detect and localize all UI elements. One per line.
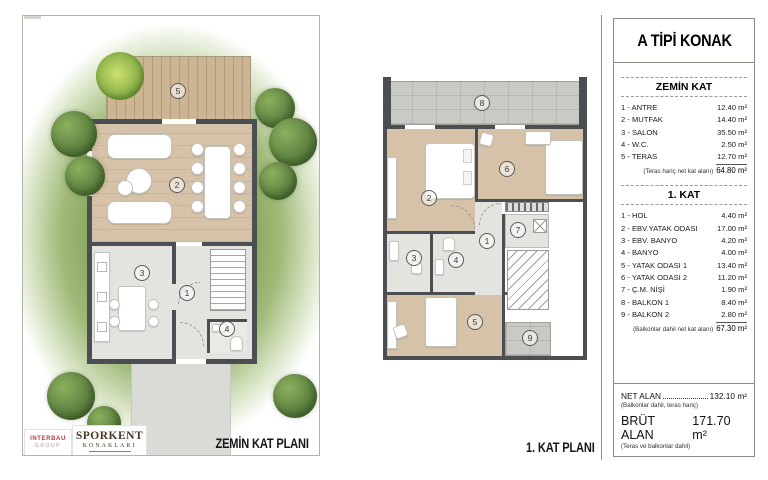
area-row-label: 1 - ANTRE (621, 102, 657, 114)
room-number-balkon1: 8 (474, 95, 490, 111)
kat1-subtotal: (Balkonlar dahil net kat alanı) 67.30 m² (621, 322, 747, 333)
sporkent-logo-subtext: KONAKLARI (83, 443, 137, 449)
tree (259, 162, 297, 200)
sink-icon (389, 241, 399, 261)
area-row-value: 4.40 m² (721, 210, 747, 222)
interbau-logo: INTERBAU GROUP (24, 429, 72, 456)
chair (233, 181, 246, 194)
net-alan-note: (Balkonlar dahil, teras hariç) (621, 402, 747, 409)
interbau-logo-text: INTERBAU (30, 436, 66, 442)
tree (273, 374, 317, 418)
brut-alan-row: BRÜT ALAN 171.70 m² (621, 414, 747, 442)
room-number-antre: 1 (179, 285, 195, 301)
sofa (107, 201, 172, 224)
room-number-ebv-yatak: 2 (421, 190, 437, 206)
zemin-kat-header: ZEMİN KAT (621, 77, 747, 97)
scale-mark (24, 16, 41, 19)
area-row: 3 - EBV. BANYO4.20 m² (621, 235, 747, 247)
area-row-label: 3 - EBV. BANYO (621, 235, 677, 247)
area-row: 1 - HOL4.40 m² (621, 210, 747, 222)
chair (148, 299, 159, 310)
area-row: 4 - W.C.2.50 m² (621, 139, 747, 151)
net-alan-row: NET ALAN 132.10 m² (621, 391, 747, 401)
first-floor-plan: 8 2 6 (375, 75, 595, 375)
area-row-label: 2 - EBV.YATAK ODASI (621, 223, 698, 235)
room-number-cm-nisi: 7 (510, 222, 526, 238)
area-row-value: 12.40 m² (717, 102, 747, 114)
area-row-value: 2.80 m² (721, 309, 747, 321)
area-row: 5 - TERAS12.70 m² (621, 151, 747, 163)
room-number-hol: 1 (479, 233, 495, 249)
tree (269, 118, 317, 166)
zemin-kat-subtotal: (Teras hariç net kat alanı) 64.80 m² (621, 164, 747, 175)
wall-stub (383, 77, 391, 129)
brut-alan-value: 171.70 m² (692, 414, 747, 442)
area-lists: ZEMİN KAT 1 - ANTRE12.40 m² 2 - MUTFAK14… (614, 63, 754, 333)
area-row-label: 8 - BALKON 1 (621, 297, 669, 309)
zemin-kat-plan-panel: 5 (22, 15, 320, 456)
area-row-value: 1.90 m² (721, 284, 747, 296)
dining-table (204, 146, 231, 219)
room-number-ebv-banyo: 3 (406, 250, 422, 266)
area-row-label: 4 - W.C. (621, 139, 648, 151)
wardrobe (387, 157, 397, 219)
area-row-value: 14.40 m² (717, 114, 747, 126)
brut-alan-note: (Teras ve balkonlar dahil) (621, 443, 747, 450)
pillow (463, 149, 472, 163)
staircase (210, 249, 246, 311)
area-row: 9 - BALKON 22.80 m² (621, 309, 747, 321)
subtotal-value: 67.30 m² (716, 322, 747, 333)
room-number-mutfak: 3 (134, 265, 150, 281)
chair (233, 143, 246, 156)
pillow (463, 171, 472, 185)
area-row-label: 7 - Ç.M. NİŞİ (621, 284, 665, 296)
area-row: 4 - BANYO4.00 m² (621, 247, 747, 259)
sheet-title-box: A TİPİ KONAK (614, 19, 754, 63)
area-row: 3 - SALON35.50 m² (621, 127, 747, 139)
panel-divider (601, 15, 602, 460)
chair (109, 316, 120, 327)
area-row-label: 4 - BANYO (621, 247, 659, 259)
washing-machine-icon (533, 219, 547, 233)
zemin-kat-rows: 1 - ANTRE12.40 m² 2 - MUTFAK14.40 m² 3 -… (621, 102, 747, 163)
bed (425, 297, 457, 347)
interior-wall (172, 310, 176, 359)
interior-wall (172, 246, 176, 284)
floorplan-sheet: 5 (0, 0, 768, 480)
sporkent-logo-rule (89, 451, 131, 452)
radiator (505, 202, 549, 212)
side-table (117, 180, 133, 196)
area-row: 1 - ANTRE12.40 m² (621, 102, 747, 114)
area-row-value: 13.40 m² (717, 260, 747, 272)
chair (148, 316, 159, 327)
room-number-banyo: 4 (448, 252, 464, 268)
brut-alan-label: BRÜT ALAN (621, 414, 688, 442)
area-row-value: 4.20 m² (721, 235, 747, 247)
room-number-yatak2: 6 (499, 161, 515, 177)
area-row: 2 - MUTFAK14.40 m² (621, 114, 747, 126)
kat1-plan-caption: 1. KAT PLANI (526, 440, 595, 455)
subtotal-note: (Balkonlar dahil net kat alanı) (633, 326, 713, 333)
net-alan-value: 132.10 m² (710, 391, 747, 401)
area-row-label: 5 - TERAS (621, 151, 657, 163)
tree (47, 372, 95, 420)
area-row-value: 12.70 m² (717, 151, 747, 163)
stove-icon (97, 292, 107, 302)
appliance-icon (97, 322, 107, 332)
tree (51, 111, 97, 157)
area-row: 6 - YATAK ODASI 211.20 m² (621, 272, 747, 284)
first-floor-house: 2 6 1 (383, 125, 587, 360)
entrance-door-opening (176, 359, 206, 364)
area-row: 5 - YATAK ODASI 113.40 m² (621, 260, 747, 272)
info-panel: A TİPİ KONAK ZEMİN KAT 1 - ANTRE12.40 m²… (613, 18, 755, 457)
subtotal-value: 64.80 m² (716, 164, 747, 175)
area-row: 2 - EBV.YATAK ODASI17.00 m² (621, 223, 747, 235)
area-row-label: 3 - SALON (621, 127, 658, 139)
area-row-value: 11.20 m² (718, 272, 747, 284)
chair (191, 162, 204, 175)
subtotal-note: (Teras hariç net kat alanı) (643, 168, 713, 175)
chair (233, 162, 246, 175)
totals-section: NET ALAN 132.10 m² (Balkonlar dahil, ter… (614, 383, 754, 456)
chair (191, 200, 204, 213)
area-row-value: 2.50 m² (721, 139, 747, 151)
sink-icon (97, 262, 107, 272)
sofa (107, 134, 172, 159)
kat1-rows: 1 - HOL4.40 m² 2 - EBV.YATAK ODASI17.00 … (621, 210, 747, 321)
toilet-icon (230, 336, 243, 351)
net-alan-label: NET ALAN (621, 391, 661, 401)
terrace-door-opening (162, 119, 196, 124)
area-row: 8 - BALKON 18.40 m² (621, 297, 747, 309)
bed (545, 140, 583, 195)
area-row-label: 9 - BALKON 2 (621, 309, 669, 321)
interbau-logo-subtext: GROUP (35, 443, 61, 449)
door-opening (176, 242, 202, 246)
wardrobe (387, 301, 397, 349)
sporkent-logo: SPORKENT KONAKLARI (72, 425, 147, 456)
area-row-label: 6 - YATAK ODASI 2 (621, 272, 687, 284)
area-row-value: 8.40 m² (721, 297, 747, 309)
area-row-label: 2 - MUTFAK (621, 114, 663, 126)
toilet-icon (443, 237, 455, 251)
kat1-header: 1. KAT (621, 185, 747, 205)
area-row-value: 17.00 m² (717, 223, 747, 235)
kat1-plan-panel: 8 2 6 (330, 15, 600, 460)
sheet-title: A TİPİ KONAK (637, 31, 731, 51)
sporkent-logo-text: SPORKENT (76, 430, 143, 442)
room-number-yatak1: 5 (467, 314, 483, 330)
tree (65, 156, 105, 196)
wall-stub (579, 77, 587, 129)
ground-floor-house: 2 3 1 4 (87, 119, 257, 364)
sink-icon (435, 259, 444, 275)
chair (109, 299, 120, 310)
dotted-leader (663, 398, 708, 399)
area-row-label: 1 - HOL (621, 210, 648, 222)
area-row-value: 4.00 m² (721, 247, 747, 259)
room-number-salon: 2 (169, 177, 185, 193)
balcony-1: 8 (387, 81, 583, 125)
zemin-kat-plan-caption: ZEMİN KAT PLANI (216, 436, 309, 451)
area-row-value: 35.50 m² (717, 127, 747, 139)
chair (233, 200, 246, 213)
area-row-label: 5 - YATAK ODASI 1 (621, 260, 687, 272)
desk (525, 131, 551, 145)
room-number-wc: 4 (219, 321, 235, 337)
area-row: 7 - Ç.M. NİŞİ1.90 m² (621, 284, 747, 296)
chair (191, 143, 204, 156)
room-number-teras: 5 (170, 83, 186, 99)
palm-tree (96, 52, 144, 100)
room-number-balkon2: 9 (522, 330, 538, 346)
staircase (507, 250, 549, 310)
kitchen-island (118, 286, 146, 331)
chair (191, 181, 204, 194)
